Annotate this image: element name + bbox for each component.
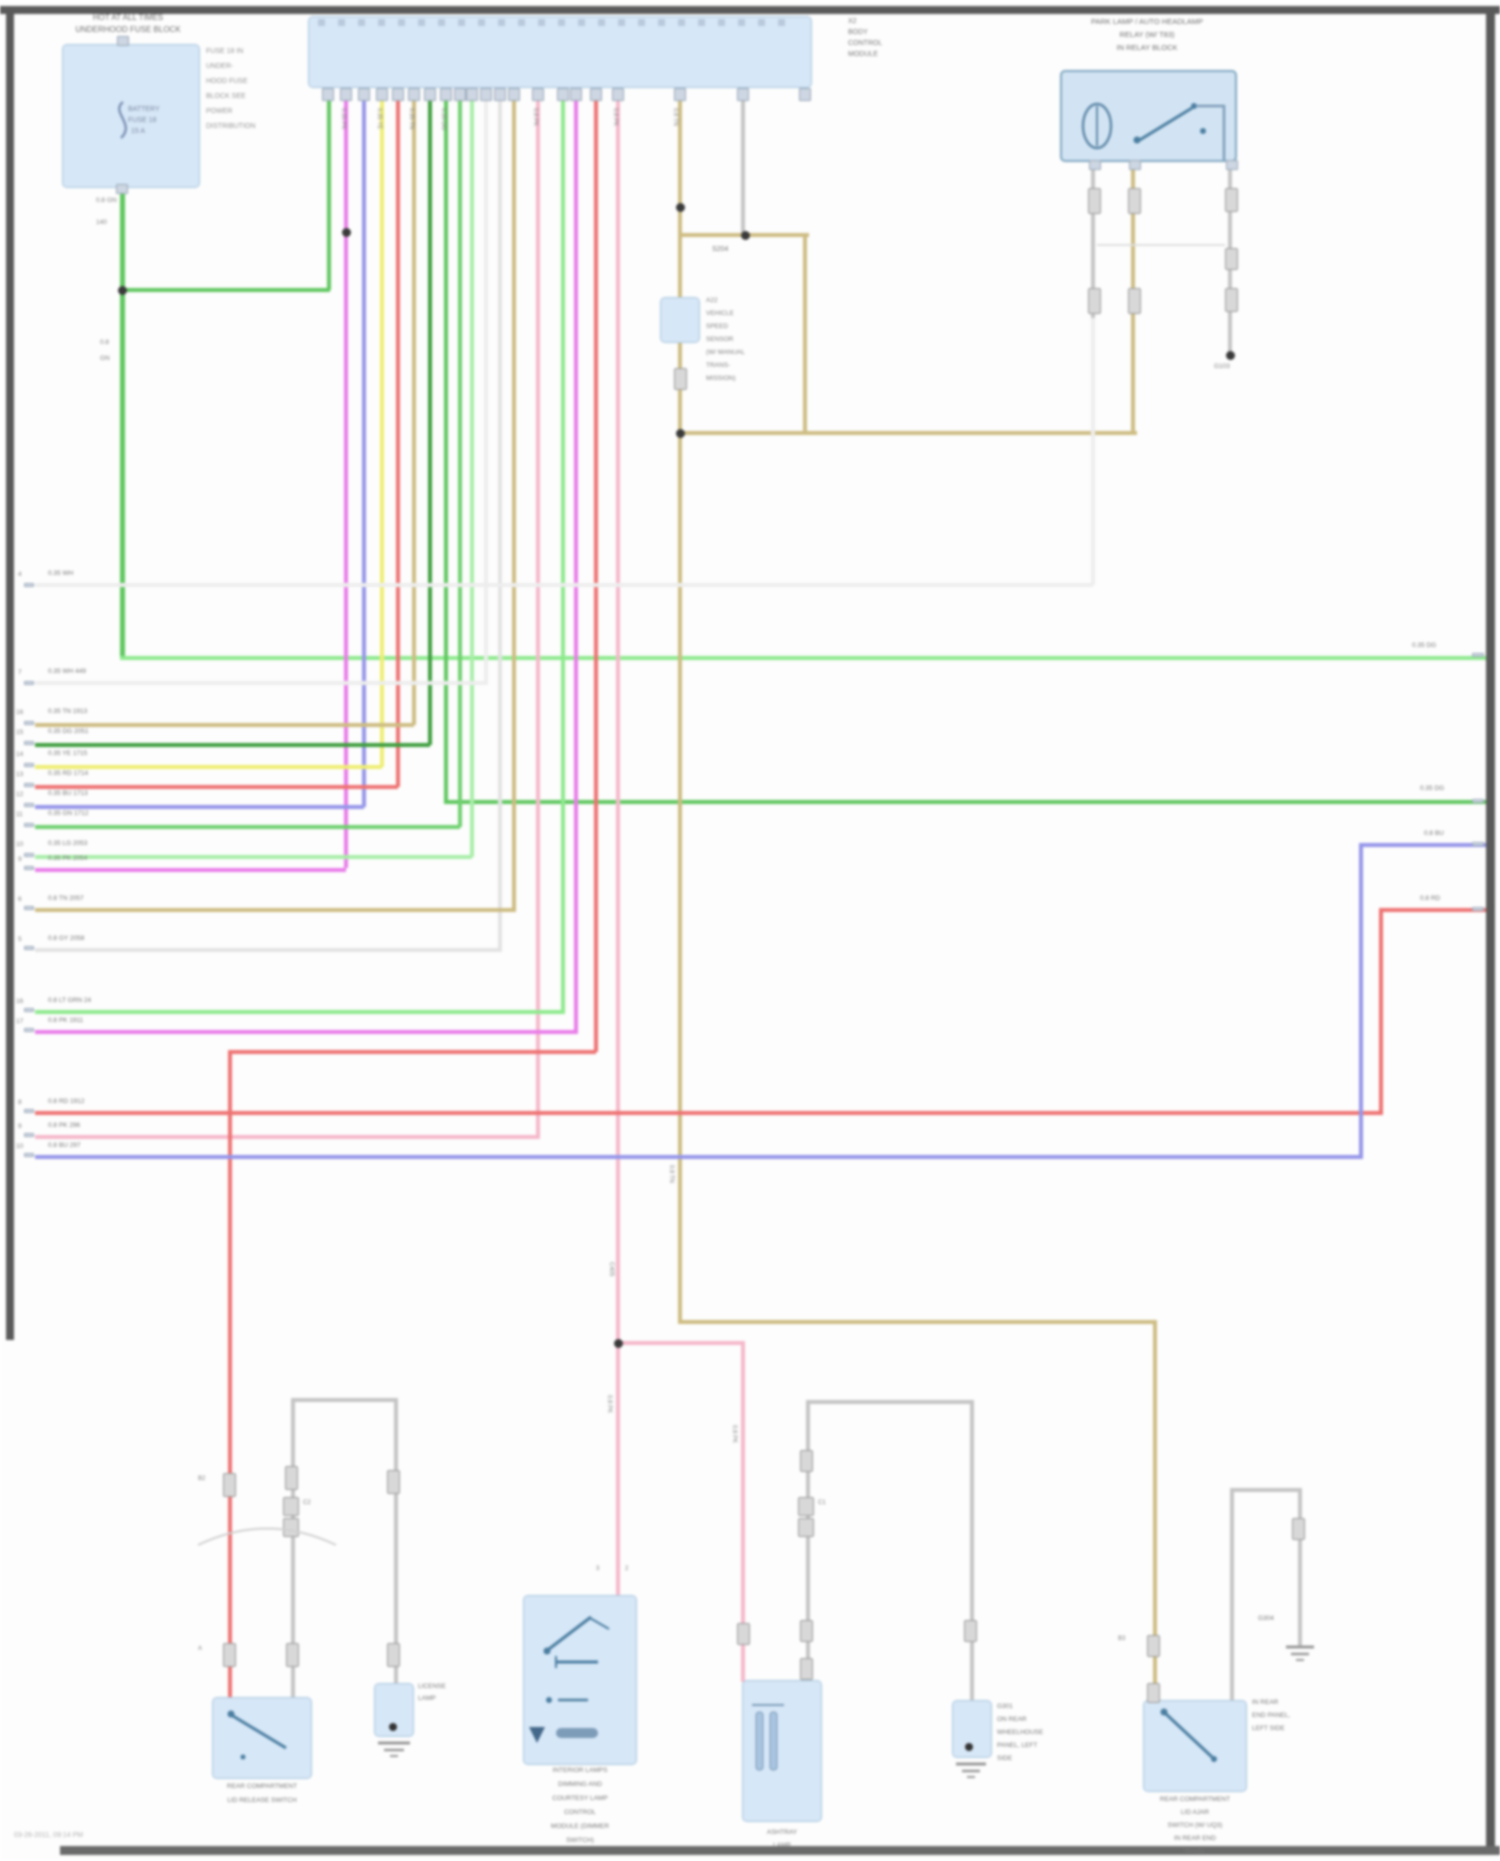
wire-label: SWITCH (W/ UQ3) — [1130, 1823, 1260, 1830]
switch-g-icon — [1161, 1709, 1218, 1763]
fusebox-title-1: HOT AT ALL TIMES — [58, 14, 198, 22]
wire-label: SPEED — [706, 324, 728, 331]
wire-label: 0.35 WH 449 — [48, 669, 86, 676]
wire-label: MODULE (DIMMER — [510, 1824, 650, 1831]
ground-f-icon — [956, 1743, 986, 1777]
lamp-d-bulb-icon — [752, 1705, 784, 1770]
wire-label: 9 — [18, 1124, 22, 1131]
wire-label: 0.35 RD 1714 — [48, 771, 88, 778]
wire-label: SIDE — [997, 1756, 1012, 1763]
wire-label: MODULE — [848, 51, 878, 58]
wire-label: 12 — [16, 792, 23, 799]
wire-label: 0.8 PK — [731, 1425, 737, 1443]
wire-label: 0.8 PK — [606, 1395, 612, 1413]
wire-label: CONTROL — [520, 1810, 640, 1817]
relay-title-3: IN RELAY BLOCK — [1092, 44, 1202, 52]
wire-label: 0.35 DG — [1412, 643, 1436, 650]
wire-label: ON REAR — [997, 1717, 1027, 1724]
wire-label: 8 — [18, 1100, 22, 1107]
wire-label: 14 — [16, 752, 23, 759]
wire-label: HOOD FUSE — [206, 78, 248, 85]
wire-label: 6 — [18, 897, 22, 904]
wire-label: DIMMING AND — [520, 1782, 640, 1789]
splice-label: S204 — [712, 246, 728, 253]
wire-label: 3 — [596, 1566, 599, 1572]
wire-label: 0.35 DG — [440, 108, 446, 130]
wire-label: 0.35 PK 2054 — [48, 856, 87, 863]
wire-label: 0.35 LG 2053 — [48, 841, 87, 848]
relay-switch-icon — [1134, 103, 1225, 160]
wire-label: VEHICLE — [706, 311, 734, 318]
wire-label: 17 — [16, 1019, 23, 1026]
wire-label: LID RELEASE SWITCH — [192, 1798, 332, 1805]
wire-label: G301 — [997, 1704, 1013, 1711]
wire-label: 0.35 YE 1715 — [48, 751, 87, 758]
wire-label: GN — [100, 356, 110, 363]
wire-label: B2 — [198, 1476, 205, 1482]
wire-label: END PANEL, — [1252, 1713, 1290, 1720]
wire-label: X2 — [848, 18, 857, 25]
wire-label: G304 — [1258, 1616, 1274, 1623]
wire-label: B3 — [1118, 1636, 1125, 1642]
wire-label: 5 — [18, 937, 22, 944]
wire-label: PANEL — [1135, 1849, 1255, 1856]
wire-label: 0.35 TN 1913 — [48, 709, 87, 716]
wire-label: 0.8 BU 297 — [48, 1143, 81, 1150]
wire-label: WHEELHOUSE — [997, 1730, 1043, 1737]
wire-label: 0.8 RD — [1420, 896, 1440, 903]
lamp-b-ground-icon — [378, 1723, 410, 1756]
wiring-diagram-page: HOT AT ALL TIMESUNDERHOOD FUSE BLOCKBATT… — [0, 0, 1500, 1861]
wire-label: 0.35 PK — [340, 108, 346, 129]
relay-title-1: PARK LAMP / AUTO HEADLAMP — [1052, 18, 1242, 26]
relay-coil-icon — [1083, 104, 1111, 148]
wire-label: 0.8 GN — [96, 198, 117, 205]
wire-label: 0.8 PK — [612, 108, 618, 126]
harness-arc — [198, 1529, 336, 1546]
wire-label: SENSOR — [706, 337, 733, 344]
wire-label: 4 — [18, 572, 22, 579]
wire-label: LEFT SIDE — [1252, 1726, 1285, 1733]
wire-label: LAMP — [722, 1843, 842, 1850]
wire-label: 0.8 PK — [532, 108, 538, 126]
wire-label: 0.8 GY 2058 — [48, 936, 84, 943]
wire-label: C1 — [818, 1500, 826, 1506]
wire-label: 140 — [96, 220, 107, 227]
wire-label: 0.35 GN 1712 — [48, 811, 88, 818]
wire-label: 0.8 TN — [668, 1165, 674, 1183]
fusebox-title-2: UNDERHOOD FUSE BLOCK — [43, 26, 213, 34]
fuse-symbol — [119, 102, 126, 138]
wire-label: 15 — [16, 730, 23, 737]
wire-label: 16 — [16, 999, 23, 1006]
wire-label: ASHTRAY — [722, 1830, 842, 1837]
wire-label: G103 — [1214, 364, 1230, 371]
relay-title-2: RELAY (W/ T83) — [1072, 31, 1222, 39]
wire-label: IN REAR — [1252, 1700, 1278, 1707]
wire-label: BODY — [848, 29, 868, 36]
wire-label: COURTESY LAMP — [520, 1796, 640, 1803]
wire-label: DISTRIBUTION — [206, 123, 255, 130]
wire-label: SWITCH) — [520, 1838, 640, 1845]
wire-label: BLOCK SEE — [206, 93, 246, 100]
wire-label: 0.35 WH — [48, 571, 73, 578]
wire-label: IN REAR END — [1130, 1836, 1260, 1843]
wire-label: A22 — [706, 298, 718, 305]
wire-label: 15 A — [131, 128, 145, 135]
wire-label: 0.8 BU — [1424, 831, 1444, 838]
wire-label: 2 — [625, 1566, 628, 1572]
wire-label: 0.8 — [100, 340, 109, 347]
wire-label: FUSE 18 IN — [206, 48, 243, 55]
wire-label: POWER — [206, 108, 232, 115]
wire-label: 0.8 TN 2057 — [48, 896, 84, 903]
wire-label: 0.35 DG 2051 — [48, 729, 88, 736]
wire-label: 13 — [16, 772, 23, 779]
wire-label: A — [198, 1646, 202, 1652]
wire-label: 10 — [16, 842, 23, 849]
wire-label: LICENSE — [418, 1684, 446, 1691]
module-c-icons — [529, 1617, 609, 1743]
wire-label: FUSE 18 — [128, 117, 156, 124]
wire-label: REAR COMPARTMENT — [1130, 1797, 1260, 1804]
wire-label: REAR COMPARTMENT — [192, 1784, 332, 1791]
wire-label: 11 — [16, 812, 23, 819]
wire-label: 7 — [18, 670, 22, 677]
wire-label: PANEL, LEFT — [997, 1743, 1037, 1750]
wire-label: 0.35 DG — [1420, 786, 1444, 793]
wire-label: 0.35 YE — [376, 108, 382, 129]
wire-label: 0.8 PK 1911 — [48, 1018, 83, 1025]
diagram-symbols — [0, 0, 1500, 1861]
wire-label: LID AJAR — [1130, 1810, 1260, 1817]
wire-label: 0.35 BU 1713 — [48, 791, 88, 798]
wire-label: 9 — [18, 857, 22, 864]
wire-label: 0.35 TN — [408, 108, 414, 129]
wire-label: BATTERY — [128, 106, 160, 113]
wire-label: TRANS- — [706, 363, 730, 370]
ground-g304-icon — [1286, 1647, 1314, 1660]
wire-label: LAMP — [418, 1696, 436, 1703]
wire-label: UNDER- — [206, 63, 233, 70]
wire-label: 16 — [16, 710, 23, 717]
wire-label: MISSION) — [706, 376, 736, 383]
wire-label: C2 — [303, 1500, 311, 1506]
wire-label: (W/ MANUAL — [706, 350, 745, 357]
switch-a-icon — [228, 1711, 287, 1760]
wire-label: 0.8 TN — [672, 108, 678, 126]
wire-label: CONTROL — [848, 40, 882, 47]
wire-label: 0.8 LT GRN 24 — [48, 998, 91, 1005]
wire-label: 0.8 PK 296 — [48, 1123, 80, 1130]
watermark: 03-26-2011, 09:14 PM — [14, 1832, 83, 1839]
wire-label: C405 — [608, 1262, 614, 1276]
wire-label: 10 — [16, 1144, 23, 1151]
wire-label: 0.8 RD 1912 — [48, 1099, 85, 1106]
wire-label: INTERIOR LAMPS — [520, 1768, 640, 1775]
